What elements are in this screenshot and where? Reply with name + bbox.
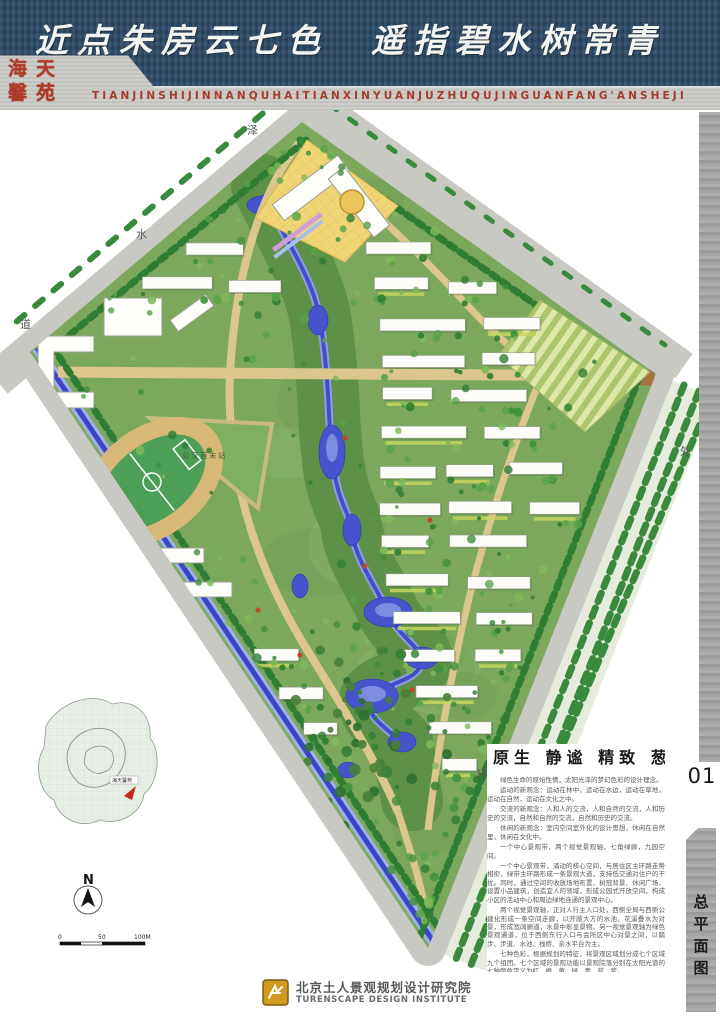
tree xyxy=(346,214,354,222)
tree xyxy=(335,786,346,797)
tree xyxy=(301,683,307,689)
design-institute-logo: 北京土人景观规划设计研究院 TURENSCAPE DESIGN INSTITUT… xyxy=(262,979,472,1006)
building xyxy=(386,574,448,586)
building xyxy=(442,759,477,771)
tree xyxy=(254,311,262,319)
tree xyxy=(333,376,338,381)
tree xyxy=(292,609,297,614)
tree xyxy=(156,463,161,468)
tree xyxy=(346,681,356,691)
tree xyxy=(320,165,324,169)
tree xyxy=(415,910,424,919)
tree xyxy=(326,757,332,763)
tree xyxy=(458,370,463,375)
tree xyxy=(513,408,522,417)
building xyxy=(366,242,431,254)
tree xyxy=(262,331,270,339)
tree xyxy=(486,481,491,486)
tree xyxy=(461,276,469,284)
tree xyxy=(426,725,431,730)
tree xyxy=(578,368,587,377)
tree xyxy=(359,698,365,704)
tree xyxy=(279,664,285,670)
tree xyxy=(363,791,374,802)
tree xyxy=(252,579,258,585)
tree xyxy=(409,854,417,862)
tree xyxy=(289,664,295,670)
tree xyxy=(147,310,153,316)
tree xyxy=(253,793,259,799)
tree xyxy=(310,629,315,634)
tree xyxy=(252,653,261,662)
tree xyxy=(499,670,505,676)
building xyxy=(484,318,540,330)
tree xyxy=(395,427,402,434)
tree xyxy=(299,804,305,810)
building xyxy=(451,390,527,402)
bus-terminus-label: 公交首末站 xyxy=(182,450,227,460)
tree xyxy=(323,618,329,624)
tree xyxy=(563,520,569,526)
tree xyxy=(592,359,597,364)
tree xyxy=(442,559,451,568)
building xyxy=(449,282,497,294)
building xyxy=(382,355,464,367)
building xyxy=(429,722,491,734)
se-road-label-1: 外 xyxy=(680,445,691,458)
tree xyxy=(430,524,435,529)
tree xyxy=(381,374,388,381)
nw-road-label-2: 水 xyxy=(136,228,147,241)
tree xyxy=(499,649,504,654)
tree xyxy=(436,586,444,594)
tree xyxy=(486,571,493,578)
tree xyxy=(294,845,302,853)
tree xyxy=(470,772,476,778)
tree xyxy=(239,301,244,306)
tree xyxy=(389,369,393,373)
tree xyxy=(410,350,417,357)
tree xyxy=(396,649,407,660)
tree xyxy=(386,445,394,453)
tree xyxy=(435,664,444,673)
tree xyxy=(452,397,460,405)
tree xyxy=(305,708,311,714)
tree xyxy=(441,628,447,634)
tree xyxy=(472,484,477,489)
building xyxy=(382,535,429,547)
tree xyxy=(573,520,582,529)
tree xyxy=(502,284,508,290)
tree xyxy=(406,774,417,785)
tree xyxy=(624,402,631,409)
tree xyxy=(531,596,535,600)
tree xyxy=(424,899,432,907)
tree xyxy=(373,716,378,721)
tree xyxy=(298,841,309,852)
tree xyxy=(385,697,392,704)
tree xyxy=(472,690,477,695)
tree xyxy=(368,707,375,714)
tree xyxy=(547,407,551,411)
hedge-row xyxy=(534,517,576,521)
tree xyxy=(265,850,272,857)
tree xyxy=(385,479,394,488)
tree xyxy=(353,723,361,731)
tree xyxy=(148,296,156,304)
tree xyxy=(427,714,436,723)
tree xyxy=(108,307,114,313)
tree xyxy=(504,465,513,474)
tree xyxy=(435,643,443,651)
scale-tick-50: 50 xyxy=(98,934,106,941)
tree xyxy=(196,263,202,269)
tree xyxy=(299,660,308,669)
tree xyxy=(380,672,384,676)
tree xyxy=(430,873,439,882)
tree xyxy=(288,387,292,391)
tree xyxy=(317,704,324,711)
tree xyxy=(381,301,385,305)
tree xyxy=(401,689,410,698)
tree xyxy=(487,373,494,380)
tree xyxy=(455,332,462,339)
design-paragraph: 交流的新观念：人和人的交流，人和自然的交流，人和历史的交流，自然和自然的交流，自… xyxy=(487,805,665,822)
tree xyxy=(346,719,352,725)
tree xyxy=(350,299,357,306)
tree xyxy=(443,769,449,775)
location-inset-map: 海天馨苑 xyxy=(39,699,158,824)
tree xyxy=(334,621,341,628)
tree xyxy=(509,604,513,608)
tree xyxy=(296,806,304,814)
tree xyxy=(363,221,371,229)
sheet-title-tab: 总平面图 xyxy=(686,828,716,1012)
tree xyxy=(467,535,476,544)
tree xyxy=(268,836,274,842)
building xyxy=(380,503,441,515)
building xyxy=(229,280,281,292)
tree xyxy=(393,669,401,677)
tree xyxy=(407,629,414,636)
tree xyxy=(320,145,328,153)
tree xyxy=(446,440,451,445)
building xyxy=(449,501,512,513)
tree xyxy=(459,489,464,494)
tree xyxy=(256,851,265,860)
tree xyxy=(426,605,433,612)
tree xyxy=(224,621,229,626)
project-seal-line2: 馨苑 xyxy=(8,81,88,105)
tree xyxy=(340,420,347,427)
tree xyxy=(425,588,433,596)
tree xyxy=(462,300,468,306)
tree xyxy=(390,256,394,260)
tree xyxy=(338,163,345,170)
tree xyxy=(270,659,277,666)
tree xyxy=(409,897,417,905)
tree xyxy=(213,295,222,304)
tree xyxy=(500,715,510,725)
sheet-title: 总平面图 xyxy=(691,894,712,1012)
tree xyxy=(138,389,144,395)
tree xyxy=(357,690,362,695)
tree xyxy=(447,477,454,484)
tree xyxy=(315,645,324,654)
tree xyxy=(246,827,258,839)
tree xyxy=(394,549,401,556)
tree xyxy=(219,557,223,561)
tree xyxy=(404,456,410,462)
building xyxy=(446,465,493,477)
tree xyxy=(209,491,213,495)
tree xyxy=(432,762,439,769)
tree xyxy=(280,149,286,155)
tree xyxy=(406,402,415,411)
tree xyxy=(368,732,376,740)
tree xyxy=(300,314,310,324)
institute-name-cn: 北京土人景观规划设计研究院 xyxy=(296,981,472,995)
tree xyxy=(291,434,295,438)
tree xyxy=(352,622,361,631)
design-paragraph: 七种色彩，根据规划的特征，将景观区域划分成七个区域九个组团。七个区域的景观功能以… xyxy=(487,950,665,972)
tree xyxy=(288,231,292,235)
building xyxy=(381,426,466,438)
tree xyxy=(271,293,280,302)
tree xyxy=(277,177,284,184)
tree xyxy=(333,709,343,719)
tree xyxy=(242,635,248,641)
design-concept-title: 原生 静谧 精致 葱郁 xyxy=(493,744,665,768)
tree xyxy=(292,212,301,221)
tree xyxy=(431,782,440,791)
tree xyxy=(337,559,346,568)
tree xyxy=(497,552,501,556)
tree xyxy=(421,853,429,861)
building xyxy=(380,467,436,479)
tree xyxy=(225,822,234,831)
tree xyxy=(297,804,306,813)
tree xyxy=(442,831,448,837)
tree xyxy=(291,695,301,705)
tree xyxy=(248,787,258,797)
tree xyxy=(338,170,344,176)
tree xyxy=(349,764,361,776)
nw-road-label-1: 泽 xyxy=(247,124,258,137)
sheet-page-number: 01 xyxy=(685,764,719,788)
tree xyxy=(548,474,557,483)
tree xyxy=(380,546,388,554)
tree xyxy=(398,491,404,497)
tree xyxy=(275,806,280,811)
tree xyxy=(305,743,314,752)
sheet-border-strip xyxy=(699,112,720,762)
tree xyxy=(432,850,439,857)
tree xyxy=(395,505,399,509)
tree xyxy=(136,446,145,455)
tree xyxy=(372,744,379,751)
tree xyxy=(273,839,285,851)
pinyin-subtitle: TIANJINSHIJINNANQUHAITIANXINYUANJUZHUQUJ… xyxy=(92,90,687,102)
tree xyxy=(453,444,461,452)
tree xyxy=(481,366,489,374)
tree xyxy=(453,797,459,803)
tree xyxy=(331,855,342,866)
building xyxy=(279,687,323,699)
tree xyxy=(220,207,227,214)
tree xyxy=(465,723,471,729)
tree xyxy=(303,827,314,838)
tree xyxy=(387,866,396,875)
tree xyxy=(340,225,347,232)
tree xyxy=(318,732,327,741)
tree xyxy=(421,864,430,873)
tree xyxy=(426,538,434,546)
tree xyxy=(306,150,311,155)
tree xyxy=(485,580,494,589)
tree xyxy=(289,797,299,807)
tree xyxy=(501,620,505,624)
tree xyxy=(290,792,300,802)
tree xyxy=(381,516,386,521)
tree xyxy=(336,237,341,242)
tree xyxy=(557,522,562,527)
tree xyxy=(518,665,523,670)
tree xyxy=(301,174,307,180)
design-description: 原生 静谧 精致 葱郁 绿色生命的原始性情，太阳光泽的梦幻色彩的设计理念。 运动… xyxy=(487,744,665,972)
project-seal: 海天 馨苑 xyxy=(8,57,88,105)
tree xyxy=(391,707,395,711)
tree xyxy=(323,773,333,783)
tree xyxy=(477,516,481,520)
tree xyxy=(220,274,224,278)
tree xyxy=(230,815,236,821)
tree xyxy=(334,657,343,666)
tree xyxy=(350,596,358,604)
tree xyxy=(342,697,347,702)
tree xyxy=(399,290,404,295)
design-paragraph: 运动的新观念：运动在林中，运动在水边，运动在草地，运动在自然，运动在文化之中。 xyxy=(487,786,665,803)
tree xyxy=(405,718,412,725)
design-paragraph: 一个中心景观带，涌动的核心空间，与居住区主环路走势相衔，绿带主环路形成一条景观大… xyxy=(487,862,665,904)
tree xyxy=(426,740,435,749)
north-arrow-icon: N xyxy=(74,873,102,914)
tree xyxy=(392,212,398,218)
design-paragraph: 休闲的新观念：室内空间室外化的设计思想，休闲在自然里，休闲在文化中。 xyxy=(487,824,665,841)
tree xyxy=(381,555,387,561)
building xyxy=(509,462,562,474)
hedge-row xyxy=(386,550,425,554)
tree xyxy=(375,662,382,669)
tree xyxy=(349,644,357,652)
tree xyxy=(394,784,399,789)
design-paragraph: 两个视觉景观轴，正对人行主入口处，西侧全局与西侧公建化形成一条空间走廊，以开敞大… xyxy=(487,906,665,948)
tree xyxy=(495,628,501,634)
tree xyxy=(240,556,247,563)
tree xyxy=(502,675,510,683)
tree xyxy=(532,446,538,452)
tree xyxy=(207,579,214,586)
tree xyxy=(194,549,200,555)
tree xyxy=(244,614,253,623)
tree xyxy=(442,729,447,734)
tree xyxy=(302,704,306,708)
tree xyxy=(365,640,369,644)
tree xyxy=(505,554,510,559)
design-paragraph: 绿色生命的原始性情，太阳光泽的梦幻色彩的设计理念。 xyxy=(487,776,665,784)
tree xyxy=(398,478,405,485)
project-seal-line1: 海天 xyxy=(8,57,88,81)
tree xyxy=(245,181,251,187)
tree xyxy=(417,701,423,707)
tree xyxy=(494,335,500,341)
design-paragraph: 一个中心景观带，两个视觉景观轴，七角绿廊，九园空间。 xyxy=(487,843,665,860)
tree xyxy=(477,281,483,287)
tree xyxy=(515,372,521,378)
tree xyxy=(207,258,214,265)
tree xyxy=(549,423,557,431)
tree xyxy=(374,819,379,824)
scale-bar: 0 50 100M xyxy=(58,934,151,945)
tree xyxy=(221,293,230,302)
tree xyxy=(449,803,458,812)
tree xyxy=(287,806,296,815)
tree xyxy=(200,296,208,304)
tree xyxy=(257,665,261,669)
tree xyxy=(490,680,495,685)
tree xyxy=(499,354,508,363)
tree xyxy=(462,384,470,392)
tree xyxy=(403,663,409,669)
tree xyxy=(322,338,327,343)
tree xyxy=(81,394,86,399)
tree xyxy=(193,259,198,264)
tree xyxy=(465,708,471,714)
tree xyxy=(243,356,249,362)
tree xyxy=(419,254,427,262)
tree xyxy=(407,893,412,898)
tree xyxy=(392,796,402,806)
tree xyxy=(479,406,485,412)
tree xyxy=(463,777,468,782)
tree xyxy=(418,333,424,339)
tree xyxy=(319,258,326,265)
tree xyxy=(195,579,202,586)
tree xyxy=(297,805,303,811)
drawing-sheet: 近点朱房云七色 遥指碧水树常青 海天 馨苑 TIANJINSHIJINNANQU… xyxy=(0,0,720,1018)
tree xyxy=(354,291,360,297)
tree xyxy=(162,475,166,479)
tree xyxy=(217,607,221,611)
tree xyxy=(267,166,276,175)
tree xyxy=(341,746,352,757)
tree xyxy=(327,727,333,733)
tree xyxy=(451,702,457,708)
scale-tick-0: 0 xyxy=(58,934,62,941)
tree xyxy=(411,650,419,658)
tree xyxy=(184,562,190,568)
tree xyxy=(268,268,274,274)
building xyxy=(475,649,521,661)
tree xyxy=(348,757,353,762)
tree xyxy=(434,330,442,338)
tree xyxy=(209,217,214,222)
tree xyxy=(505,665,512,672)
tree xyxy=(236,218,241,223)
tree xyxy=(506,627,511,632)
institute-name-en: TURENSCAPE DESIGN INSTITUTE xyxy=(296,995,472,1005)
tree xyxy=(430,226,439,235)
